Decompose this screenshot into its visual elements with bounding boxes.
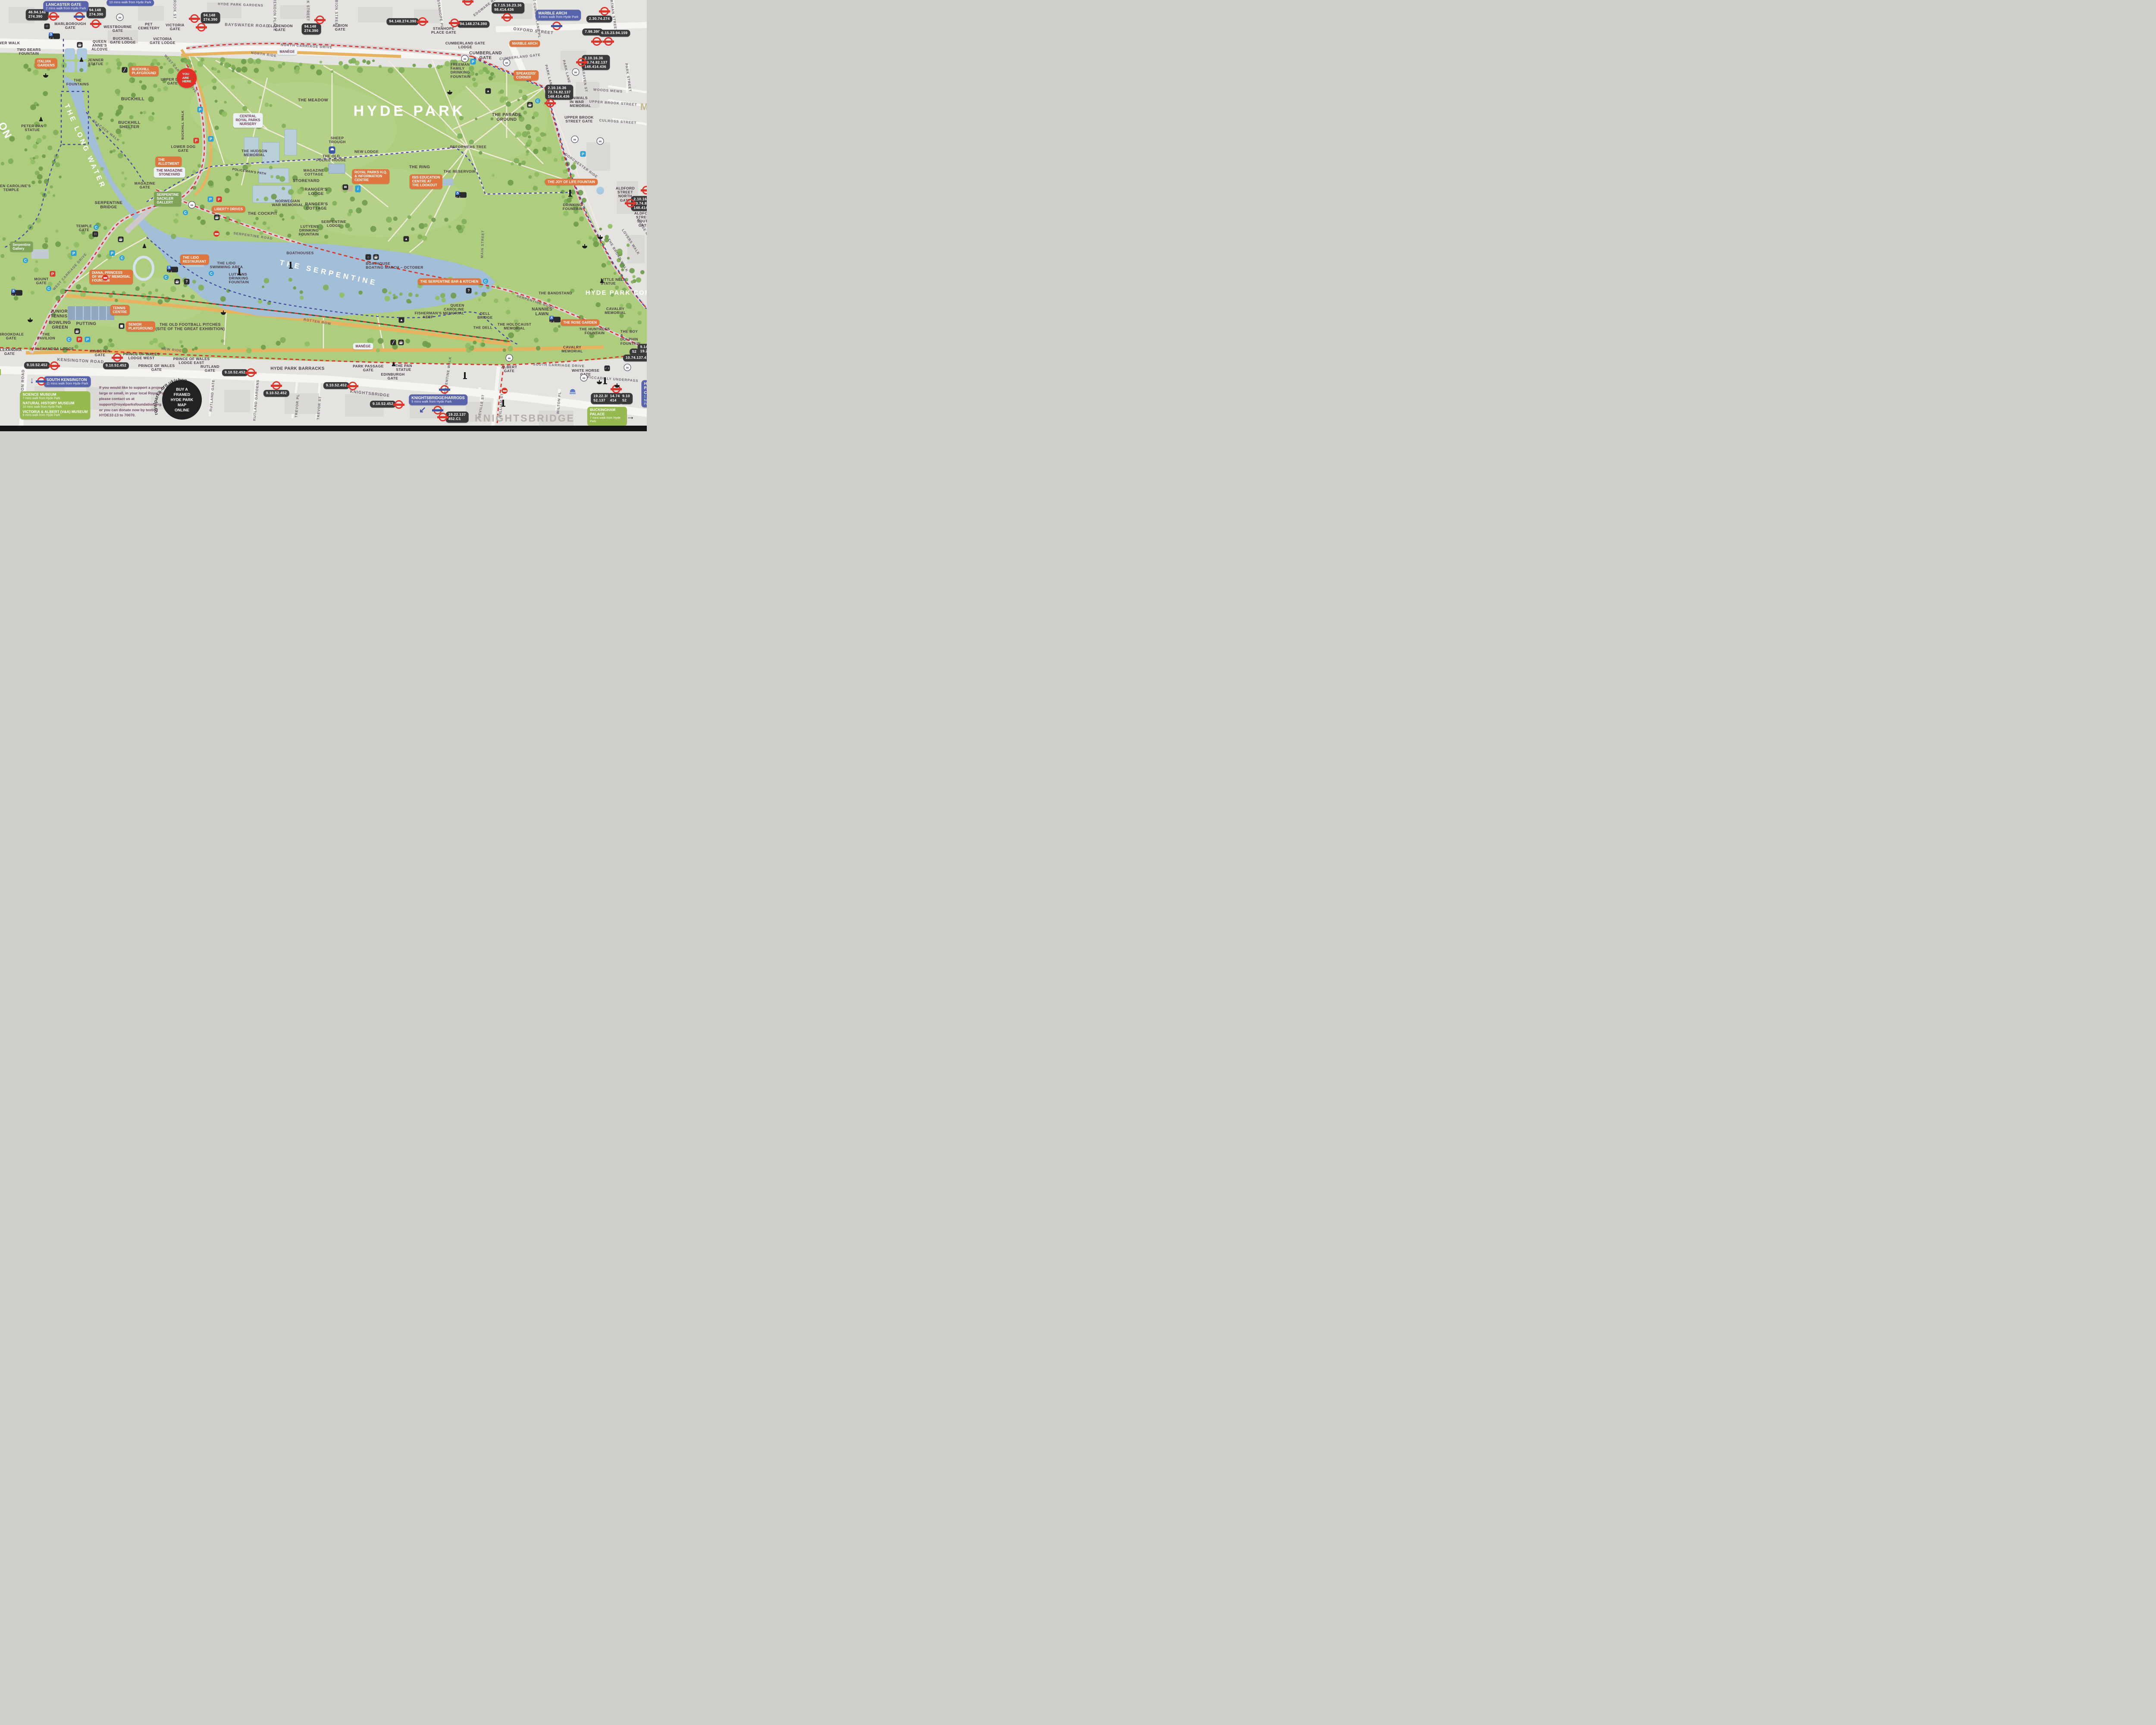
shop-circle: BUY AFRAMEDHYDE PARKMAPONLINE bbox=[162, 380, 202, 420]
place-label: THE PAVILION bbox=[37, 332, 55, 340]
place-label: VICTORIA GATE LODGE bbox=[150, 37, 175, 45]
place-label: THE PARADE GROUND bbox=[492, 113, 521, 122]
coach-icon: C bbox=[483, 279, 488, 284]
fountain-icon bbox=[221, 311, 226, 315]
bus-route-badge: 9.14 19.22 bbox=[638, 344, 647, 355]
orange-badge: ISIS EDUCATION CENTRE AT THE LOOKOUT bbox=[410, 174, 442, 189]
place-label: QUEEN CAROLINE MEMORIAL bbox=[443, 304, 464, 316]
crossing-icon: ∷ bbox=[44, 24, 50, 29]
bus-route-badge: 6.15.23.94.159 bbox=[599, 30, 630, 37]
street-label: HYDE PARK GARDENS bbox=[218, 2, 263, 8]
street-label: BROOK ST bbox=[173, 0, 177, 19]
place-label: MARLBOROUGH GATE bbox=[54, 22, 86, 30]
place-label: THE OLD POLICE HOUSE bbox=[316, 154, 346, 162]
street-label: MAIN STREET bbox=[480, 230, 485, 258]
place-label: POLICEMAN'S PATH bbox=[232, 167, 266, 176]
place-label: BUCKHILL SHELTER bbox=[118, 121, 141, 130]
fountain-icon bbox=[598, 236, 603, 239]
underground-roundel-icon bbox=[440, 385, 449, 394]
place-label: FREEMAN FAMILY DRINKING FOUNTAIN bbox=[451, 63, 470, 79]
bus-stop-roundel-icon bbox=[315, 15, 325, 25]
place-label: THE LIDO SWIMMING AREA bbox=[210, 261, 243, 269]
bus-stop-roundel-icon bbox=[49, 12, 58, 21]
place-label: PRINCE OF WALES LODGE WEST bbox=[123, 352, 160, 360]
place-label: THE HOLOCAUST MEMORIAL bbox=[498, 323, 531, 330]
attraction-badge: BUCKINGHAM PALACE7 mins walk from Hyde P… bbox=[587, 407, 627, 426]
bus-stop-roundel-icon bbox=[50, 361, 59, 370]
bus-route-badge: 9.10.52.452 bbox=[222, 369, 248, 376]
bus-route-badge: 2.30.74.274 bbox=[586, 16, 612, 22]
bus-route-badge: 10.74.137.414 bbox=[623, 354, 647, 361]
station-badge: LANCASTER GATE2 mins walk from Hyde Park bbox=[43, 1, 88, 12]
orange-badge: ITALIAN GARDENS bbox=[35, 58, 57, 69]
bus-stop-roundel-icon bbox=[113, 353, 122, 362]
cycle-hire-icon: ∞ bbox=[624, 364, 631, 371]
place-label: CAVALRY MEMORIAL bbox=[605, 307, 626, 315]
place-label: THE FOUNTAINS bbox=[66, 78, 89, 86]
place-label: QUEEN ANNE'S ALCOVE bbox=[91, 40, 108, 52]
bus-stop-roundel-icon bbox=[600, 6, 609, 16]
place-label: THE MEADOW bbox=[298, 98, 328, 103]
coach-icon: C bbox=[46, 286, 51, 291]
water-label: ON bbox=[0, 120, 14, 141]
statue-icon: ♟ bbox=[599, 278, 605, 285]
arrow-sw-icon: ↙ bbox=[419, 405, 426, 415]
cycle-hire-icon: ∞ bbox=[597, 138, 604, 145]
toilets-pair-icon: ♿ ♂♀ bbox=[549, 317, 561, 323]
bus-stop-roundel-icon bbox=[348, 381, 357, 391]
parking-blue-icon: P bbox=[110, 251, 115, 256]
street-label: UPPER BROOK STREET bbox=[589, 100, 637, 107]
place-label: UPPER BROOK STREET GATE bbox=[564, 116, 594, 123]
place-label: THE COCKPIT bbox=[248, 212, 278, 216]
bus-route-badge: 9.10.52.452 bbox=[263, 390, 289, 397]
street-label: TREVOR PL bbox=[294, 394, 300, 417]
underground-roundel-icon bbox=[37, 376, 46, 386]
no-entry-icon bbox=[501, 388, 508, 394]
place-label: HYDE PARK BARRACKS bbox=[270, 367, 324, 372]
place-label: THE PAN STATUE bbox=[395, 364, 412, 372]
place-label: BUCKHILL WALK bbox=[181, 110, 185, 140]
station-badge: KNIGHTSBRIDGE/HARRODS5 mins walk from Hy… bbox=[409, 395, 467, 405]
parking-blue-icon: P bbox=[197, 107, 203, 113]
bus-stop-roundel-icon bbox=[592, 37, 602, 46]
street-label: LOVERS WALK bbox=[621, 228, 640, 255]
bus-route-badge: 94.148 274.390 bbox=[201, 12, 220, 23]
bus-route-badge: 2.10.16.36 73.74.82.137 148.414.436 bbox=[545, 85, 573, 100]
place-label: MAGAZINE COTTAGE bbox=[304, 169, 325, 176]
place-label: CUMBERLAND GATE LODGE bbox=[445, 41, 485, 49]
area-label: KNIGHTSBRIDGE bbox=[475, 413, 575, 424]
parking-red-icon: P bbox=[194, 138, 199, 144]
orange-badge: DIANA, PRINCESS OF WALES' MEMORIAL FOUNT… bbox=[89, 270, 133, 284]
gallery-badge: SERPENTINE SACKLER GALLERY bbox=[154, 191, 181, 206]
statue-icon: ♟ bbox=[38, 116, 44, 123]
bus-route-badge: 9.10.52.452 bbox=[24, 362, 50, 369]
obelisk-icon bbox=[238, 268, 240, 274]
orange-badge: ROYAL PARKS H.Q. & INFORMATION CENTRE bbox=[352, 169, 389, 184]
place-label: THE HUNTRESS FOUNTAIN bbox=[580, 327, 610, 335]
bus-stop-roundel-icon bbox=[642, 185, 647, 195]
orange-badge: TENNIS CENTRE bbox=[110, 305, 130, 315]
bus-stop-roundel-icon bbox=[190, 14, 199, 23]
fountain-icon bbox=[614, 384, 620, 388]
cycle-hire-icon: ∞ bbox=[506, 354, 513, 362]
statue-icon: ♟ bbox=[79, 56, 84, 63]
place-label: EDINBURGH GATE bbox=[381, 373, 404, 380]
hyde-park-map-sign: MARLBOROUGH GATEWESTBOURNE GATEPET CEMET… bbox=[0, 0, 647, 431]
toilets-pair-icon: ♿ ♂♀ bbox=[49, 34, 60, 39]
gallery-badge: Serpentine Gallery bbox=[10, 241, 33, 252]
info-icon: i bbox=[355, 185, 361, 192]
place-label: BROOKDALE GATE bbox=[0, 332, 24, 340]
place-label: CAVALRY MEMORIAL bbox=[561, 345, 583, 353]
coach-icon: C bbox=[209, 271, 214, 276]
street-label: PEACOCK WALK bbox=[92, 119, 121, 143]
place-label: JUNIOR TENNIS bbox=[50, 310, 68, 319]
sign-frame bbox=[0, 426, 647, 431]
bus-stop-roundel-icon bbox=[545, 98, 555, 108]
orange-badge: THE JOY OF LIFE FOUNTAIN bbox=[545, 179, 598, 185]
obelisk-icon bbox=[569, 190, 571, 196]
place-label: MAGAZINE GATE bbox=[135, 182, 156, 189]
map-labels-layer: MARLBOROUGH GATEWESTBOURNE GATEPET CEMET… bbox=[0, 0, 647, 431]
place-label: TEMPLE GATE bbox=[76, 224, 92, 232]
place-label: PARK PASSAGE GATE bbox=[353, 364, 384, 372]
place-label: RANGER'S LODGE bbox=[305, 188, 328, 197]
bus-stop-roundel-icon bbox=[272, 381, 281, 390]
orange-badge: LIBERTY DRIVES bbox=[212, 206, 245, 212]
cycle-hire-icon: ∞ bbox=[461, 55, 469, 63]
bandstand-icon bbox=[570, 389, 576, 394]
statue-icon: ♟ bbox=[142, 243, 147, 250]
place-label: SERPENTINE LODGE bbox=[321, 220, 346, 228]
street-label: NORTH RIDE bbox=[251, 51, 277, 58]
cafe-icon: ☕ bbox=[77, 42, 83, 48]
place-label: ALEXANDRA LODGE bbox=[34, 347, 74, 351]
street-label: CLARENDON PLACE bbox=[273, 0, 277, 31]
fountain-icon bbox=[582, 245, 587, 248]
place-label: ALBERT GATE bbox=[501, 365, 517, 373]
parking-blue-icon: P bbox=[208, 197, 213, 202]
place-label: VICTORIA GATE bbox=[166, 23, 185, 31]
cafe-icon: ☕ bbox=[214, 215, 220, 220]
place-label: BUCKHILL bbox=[121, 97, 144, 102]
obelisk-icon bbox=[290, 262, 291, 268]
place-label: BOATHOUSES bbox=[286, 251, 313, 255]
street-label: PARK LANE bbox=[562, 60, 571, 84]
place-label: JENNER STATUE bbox=[88, 58, 104, 66]
bus-route-badge: 19.22.137 452.C1 bbox=[446, 411, 469, 423]
street-label: WILTON PL bbox=[556, 392, 562, 414]
bus-stop-roundel-icon bbox=[438, 412, 448, 422]
bus-stop-roundel-icon bbox=[463, 0, 473, 6]
obelisk-icon bbox=[502, 400, 504, 406]
orange-badge: THE LIDO RESTAURANT bbox=[180, 254, 209, 265]
place-label: REFORMERS TREE bbox=[450, 145, 487, 149]
place-label: THE RESERVOIR bbox=[444, 169, 476, 173]
street-label: KENSINGTON ROAD bbox=[57, 358, 104, 365]
place-label: FISHERMAN'S KEEP bbox=[415, 311, 442, 319]
deckchair-icon: ▲ bbox=[404, 236, 409, 242]
bus-stop-roundel-icon bbox=[418, 17, 427, 26]
park-title: HYDE PARK bbox=[354, 103, 466, 120]
coach-icon: C bbox=[66, 337, 72, 342]
fountain-icon bbox=[28, 319, 33, 322]
parking-red-icon: P bbox=[77, 337, 82, 342]
bus-stop-roundel-icon bbox=[577, 57, 586, 67]
fountain-icon bbox=[447, 91, 452, 94]
cycle-hire-icon: ∞ bbox=[571, 136, 579, 143]
place-label: BOWLING GREEN bbox=[49, 321, 71, 330]
white-badge: CENTRAL ROYAL PARKS NURSERY bbox=[233, 113, 263, 128]
place-label: PUTTING bbox=[76, 322, 97, 327]
street-label: WEST CARRIAGE DRIVE bbox=[52, 252, 88, 291]
orange-badge: BUCKHILL PLAYGROUND bbox=[129, 66, 159, 76]
place-label: THE DELL bbox=[473, 326, 493, 329]
place-label: WESTBOURNE GATE bbox=[103, 25, 132, 33]
toilets-pair-icon: ♿ ♂♀ bbox=[11, 290, 22, 296]
place-label: RANGER'S COTTAGE bbox=[305, 202, 328, 211]
place-label: BUCKHILL GATE LODGE bbox=[110, 37, 136, 44]
bus-stop-roundel-icon bbox=[197, 22, 206, 32]
coach-icon: C bbox=[23, 258, 28, 263]
white-badge: MANÈGE bbox=[277, 48, 297, 55]
underground-roundel-icon bbox=[552, 21, 561, 31]
abacus-icon: ▦ bbox=[119, 323, 125, 329]
coach-icon: C bbox=[183, 210, 188, 215]
coach-icon: C bbox=[535, 98, 540, 103]
police-icon bbox=[329, 147, 335, 154]
cafe-icon: ☕ bbox=[373, 254, 379, 260]
parking-blue-icon: P bbox=[71, 251, 77, 256]
water-label: THE LONG WATER bbox=[62, 103, 107, 191]
bus-stop-roundel-icon bbox=[91, 19, 100, 28]
parking-blue-icon: P bbox=[470, 59, 476, 65]
underground-roundel-icon bbox=[75, 12, 84, 21]
place-label: THE BANDSTAND bbox=[539, 291, 572, 295]
place-label: SERPENTINE BRIDGE bbox=[95, 201, 123, 210]
deckchair-icon: ▲ bbox=[486, 88, 491, 94]
place-label: DELL BRIDGE bbox=[477, 312, 492, 320]
crossing-icon: ∷ bbox=[93, 232, 98, 237]
street-label: NEW RIDE bbox=[161, 347, 182, 353]
bus-route-badge: 94.148 274.390 bbox=[87, 7, 106, 18]
place-label: DRINKING FOUNTAIN bbox=[563, 203, 583, 211]
bus-route-badge: 9.10.52.452 bbox=[323, 382, 349, 389]
area-label: HYDE PARK CORNER bbox=[586, 289, 647, 297]
shop-badge: royalparks.org.uk/shopBUY AFRAMEDHYDE PA… bbox=[149, 367, 214, 431]
street-label: PARK STREET bbox=[624, 63, 632, 92]
attraction-badge: SCIENCE MUSEUM7 mins walk from Hyde Park… bbox=[20, 391, 90, 419]
bus-route-badge: 6.7.15.16.23.36 98.414.436 bbox=[492, 2, 524, 13]
parking-blue-icon: P bbox=[580, 151, 586, 157]
place-label: THE OLD FOOTBALL PITCHES (SITE OF THE GR… bbox=[156, 323, 225, 331]
place-label: BOATHOUSE BOATING MARCH – OCTOBER bbox=[366, 262, 423, 270]
parking-blue-icon: P bbox=[85, 337, 91, 342]
white-badge: THE MAGAZINE STONEYARD bbox=[154, 167, 185, 178]
bus-stop-roundel-icon bbox=[450, 18, 459, 28]
restaurant-icon: ? bbox=[184, 279, 190, 285]
place-label: LUTYENS DRINKING FOUNTAIN bbox=[299, 225, 319, 237]
restaurant-icon: ? bbox=[466, 288, 472, 294]
water-label: THE SERPENTINE bbox=[279, 258, 378, 288]
orange-badge: THE SERPENTINE BAR & KITCHEN bbox=[418, 278, 481, 285]
bus-route-badge: 94.148.274.390 bbox=[386, 18, 419, 25]
coach-icon: C bbox=[119, 255, 125, 260]
street-label: WOODS MEWS bbox=[593, 88, 623, 94]
orange-badge: SENIOR PLAYGROUND bbox=[126, 321, 155, 332]
no-entry-icon bbox=[213, 231, 219, 237]
place-label: CLARENDON GATE bbox=[268, 24, 293, 32]
place-label: FLOWER WALK bbox=[0, 41, 20, 45]
bus-stop-roundel-icon bbox=[604, 37, 613, 46]
you-are-here-marker: YOU ARE HERE bbox=[177, 68, 197, 88]
place-label: MOUNT GATE bbox=[34, 277, 48, 285]
place-label: STOREYARD bbox=[293, 179, 320, 183]
coach-icon: C bbox=[94, 225, 99, 230]
street-label: THE BROAD WALK bbox=[607, 238, 629, 273]
bus-route-badge: 9.10.52.452 bbox=[370, 401, 396, 408]
arrow-right-icon: → bbox=[626, 412, 635, 422]
shopping-icon: ⌂ bbox=[366, 254, 371, 260]
bus-route-badge: 94.148 274.390 bbox=[302, 23, 321, 34]
street-label: ROTTEN ROW bbox=[303, 317, 331, 326]
street-label: TREVOR ST bbox=[316, 396, 322, 420]
place-label: THE RING bbox=[409, 165, 430, 169]
toilets-pair-icon: ♿ ♂♀ bbox=[455, 192, 467, 198]
place-label: LOWER DOG GATE bbox=[171, 145, 196, 153]
cycle-hire-icon: ∞ bbox=[188, 201, 196, 209]
bus-route-badge: 94.148.274.390 bbox=[457, 21, 489, 28]
cycle-hire-icon: ∞ bbox=[116, 14, 124, 21]
bus-stop-roundel-icon bbox=[394, 400, 404, 409]
orange-badge: MARBLE ARCH bbox=[509, 40, 540, 47]
station-badge: 10 mins walk from Hyde Park bbox=[107, 0, 154, 6]
orange-badge: THE ROSE GARDEN bbox=[561, 319, 599, 326]
area-label: M bbox=[640, 101, 647, 113]
cycle-hire-icon: ∞ bbox=[572, 69, 580, 76]
place-label: TWO BEARS FOUNTAIN bbox=[17, 48, 41, 56]
parking-red-icon: P bbox=[50, 271, 56, 277]
place-label: THE BOY & DOLPHIN FOUNTAIN bbox=[620, 330, 640, 346]
parking-blue-icon: P bbox=[208, 136, 214, 142]
bus-route-badge: 9.10 52 bbox=[620, 393, 633, 404]
street-label: RUTLAND GARDENS bbox=[252, 379, 260, 421]
place-label: PRINCE OF WALES LODGE EAST bbox=[173, 357, 210, 365]
no-entry-icon bbox=[102, 275, 108, 281]
place-label: PETER PAN STATUE bbox=[21, 124, 44, 132]
street-label: CULROSS STREET bbox=[599, 118, 636, 125]
cafe-icon: ☕ bbox=[75, 329, 80, 334]
orange-badge: SPEAKERS' CORNER bbox=[514, 70, 539, 81]
place-label: ALEXANDRA GATE bbox=[0, 348, 22, 356]
cycle-hire-icon: ∞ bbox=[580, 374, 588, 382]
obelisk-icon bbox=[464, 372, 466, 378]
street-label: BAYSWATER ROAD bbox=[225, 22, 269, 29]
playground-icon: ╱ bbox=[122, 67, 128, 73]
arrow-down-icon: ↓ bbox=[30, 376, 34, 386]
coach-icon: C bbox=[163, 275, 169, 280]
playground-icon: ╱ bbox=[391, 340, 396, 345]
place-label: SHEEP TROUGH bbox=[329, 136, 345, 144]
place-label: NORWEGIAN WAR MEMORIAL bbox=[272, 199, 303, 207]
station-badge: SOUTH KENSINGTON11 mins walk from Hyde P… bbox=[44, 376, 91, 387]
toilets-icon: ♂♀ bbox=[605, 366, 610, 371]
cafe-icon: ☕ bbox=[118, 237, 124, 242]
bus-route-badge: 9.10.52.452 bbox=[103, 362, 129, 369]
fountain-icon bbox=[597, 381, 602, 384]
street-label: SERPENTINE ROAD bbox=[233, 231, 273, 241]
bus-stop-roundel-icon bbox=[502, 13, 512, 22]
cycle-hire-icon: ∞ bbox=[503, 59, 511, 66]
fountain-icon bbox=[43, 74, 48, 78]
toilets-pair-icon: ♿ ♂♀ bbox=[167, 267, 178, 273]
cafe-icon: ☕ bbox=[175, 279, 180, 285]
place-label: NEW LODGE bbox=[354, 150, 379, 154]
station-badge: HYDE PARK CORNER1 min walk from Hyde Par… bbox=[642, 380, 647, 408]
street-label: PICCADILLY UNDERPASS bbox=[587, 375, 638, 383]
bus-stop-roundel-icon bbox=[246, 368, 256, 377]
street-label: SOUTH CARRIAGE DRIVE bbox=[533, 362, 585, 368]
place-label: QUEEN CAROLINE'S TEMPLE bbox=[0, 184, 31, 192]
envelope-icon: ✉ bbox=[343, 185, 348, 190]
place-label: PET CEMETERY bbox=[138, 22, 160, 30]
street-label: OXFORD STREET bbox=[513, 27, 554, 36]
bus-stop-roundel-icon bbox=[626, 198, 635, 208]
street-label: STANHOPE PL bbox=[436, 0, 444, 28]
statue-icon: ♟ bbox=[391, 361, 396, 368]
street-label: ALBION STREET bbox=[335, 0, 338, 28]
station-badge: MARBLE ARCH3 mins walk from Hyde Park bbox=[536, 10, 581, 21]
place-label: KINGSTON GATE bbox=[90, 349, 110, 357]
deckchair-icon: ▲ bbox=[399, 317, 404, 323]
parking-red-icon: P bbox=[216, 197, 222, 202]
street-label: PARK STREET bbox=[306, 0, 310, 21]
cafe-icon: ☕ bbox=[527, 102, 533, 108]
orange-badge: THE ALLOTMENT bbox=[155, 157, 182, 167]
obelisk-icon bbox=[604, 377, 606, 383]
cafe-icon: ☕ bbox=[398, 340, 404, 345]
white-badge: MANÈGE bbox=[353, 343, 373, 349]
place-label: THE HUDSON MEMORIAL bbox=[241, 149, 267, 157]
